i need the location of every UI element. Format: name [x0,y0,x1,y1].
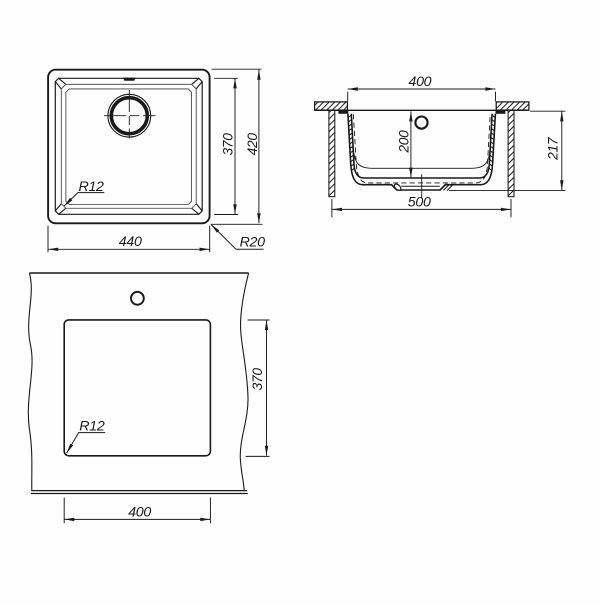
svg-text:R12: R12 [79,418,105,434]
svg-text:370: 370 [250,368,265,391]
svg-text:420: 420 [245,133,260,156]
svg-text:400: 400 [409,74,432,90]
svg-text:200: 200 [396,130,411,154]
svg-text:400: 400 [128,505,151,521]
svg-text:370: 370 [221,133,236,156]
svg-text:440: 440 [119,234,142,250]
svg-text:217: 217 [546,136,561,161]
svg-text:500: 500 [408,194,431,210]
svg-text:R12: R12 [79,179,105,195]
svg-text:R20: R20 [240,235,266,251]
